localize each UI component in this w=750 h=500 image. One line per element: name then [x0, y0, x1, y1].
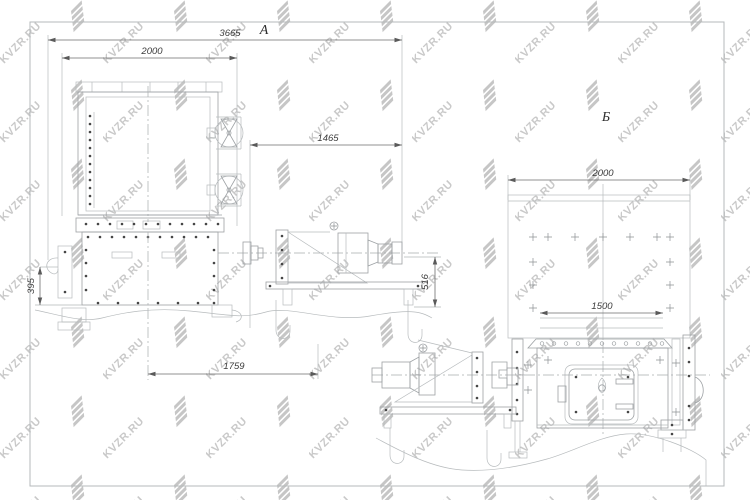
dim-condenser-width-label: 2000 [140, 46, 163, 57]
drawing-canvas: KVZR.RU А 3665 2000 1465 [0, 0, 750, 500]
dim-overall-length-label: 3665 [219, 28, 241, 39]
dim-side-offset-label: 395 [26, 277, 37, 294]
technical-drawing-svg: KVZR.RU А 3665 2000 1465 [0, 0, 750, 500]
dim-drive-extension-label: 1465 [317, 133, 339, 144]
eyebolt-b [419, 344, 427, 352]
view-a-label: А [259, 23, 269, 38]
eyebolt-a [330, 222, 338, 230]
view-b-label: Б [601, 110, 610, 125]
dim-center-to-drive-label: 1759 [223, 361, 245, 372]
dim-axis-height-label: 516 [420, 273, 431, 290]
dim-rear-panel-width-label: 2000 [591, 168, 614, 179]
dim-body-width-label: 1500 [591, 301, 613, 312]
